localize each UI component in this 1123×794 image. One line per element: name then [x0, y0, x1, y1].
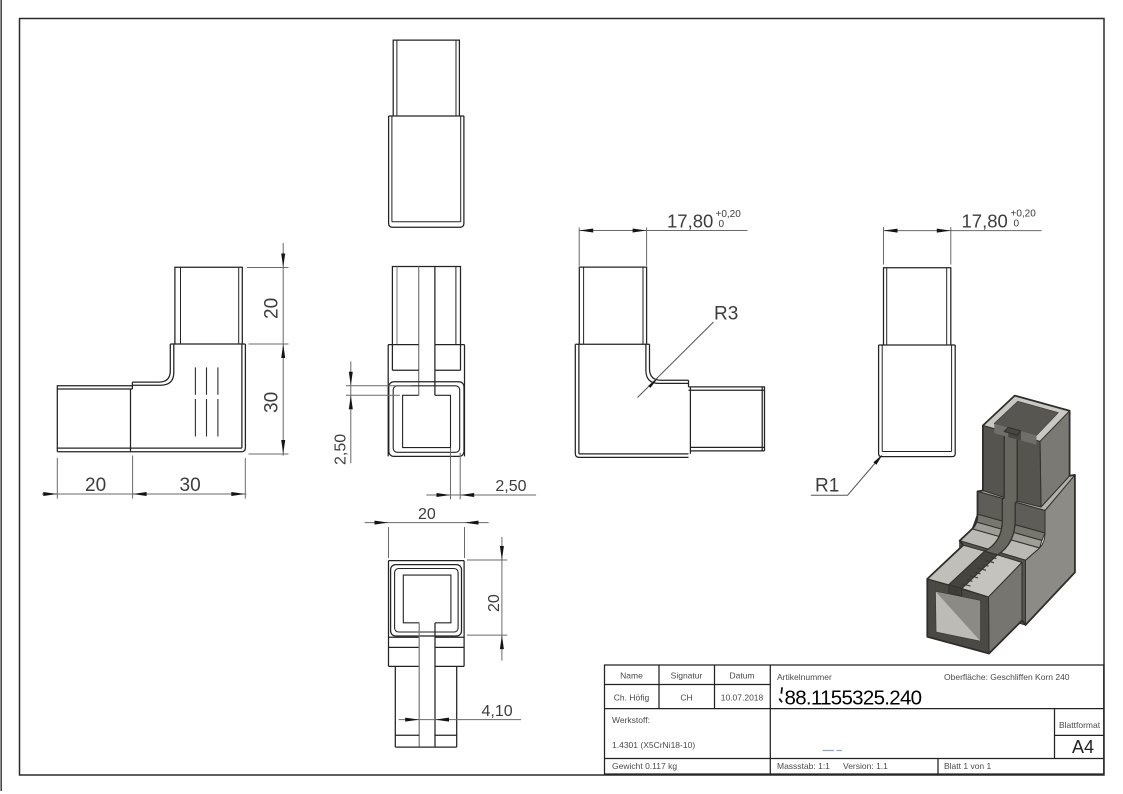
svg-text:2,50: 2,50: [495, 478, 526, 495]
svg-text:30: 30: [262, 392, 283, 413]
svg-text:Massstab: 1:1: Massstab: 1:1: [777, 761, 830, 771]
svg-text:10.07.2018: 10.07.2018: [721, 693, 764, 703]
svg-text:Werkstoff:: Werkstoff:: [612, 715, 650, 725]
svg-text:20: 20: [262, 298, 283, 319]
svg-text:Gewicht 0.117 kg: Gewicht 0.117 kg: [612, 761, 677, 771]
svg-text:Ch. Höfig: Ch. Höfig: [614, 693, 650, 703]
svg-text:30: 30: [180, 475, 201, 496]
svg-text:Oberfläche: Geschliffen Korn: Oberfläche: Geschliffen Korn 240: [944, 672, 1070, 682]
svg-text:A4: A4: [1072, 737, 1094, 757]
svg-text:Signatur: Signatur: [671, 671, 703, 681]
svg-text:Datum: Datum: [729, 671, 754, 681]
svg-text:Version: 1.1: Version: 1.1: [843, 761, 888, 771]
svg-text:2,50: 2,50: [333, 434, 350, 465]
svg-text:20: 20: [85, 475, 106, 496]
svg-text:R3: R3: [714, 304, 738, 325]
svg-text:0: 0: [1014, 218, 1020, 229]
svg-text:Blatt 1 von 1: Blatt 1 von 1: [944, 761, 992, 771]
svg-text:0: 0: [719, 219, 725, 230]
svg-text:Blattformat: Blattformat: [1059, 720, 1101, 730]
svg-text:20: 20: [418, 506, 436, 523]
svg-text:17,80: 17,80: [667, 210, 713, 231]
svg-text:88.1155325.240: 88.1155325.240: [785, 687, 922, 710]
svg-text:20: 20: [486, 594, 503, 612]
svg-text:R1: R1: [815, 476, 839, 497]
svg-text:CH: CH: [680, 693, 692, 703]
svg-text:17,80: 17,80: [962, 210, 1008, 231]
svg-text:Artikelnummer: Artikelnummer: [777, 672, 832, 682]
svg-text:4,10: 4,10: [482, 703, 513, 720]
svg-text:Name: Name: [620, 671, 643, 681]
svg-text:1.4301 (X5CrNi18-10): 1.4301 (X5CrNi18-10): [612, 740, 695, 750]
